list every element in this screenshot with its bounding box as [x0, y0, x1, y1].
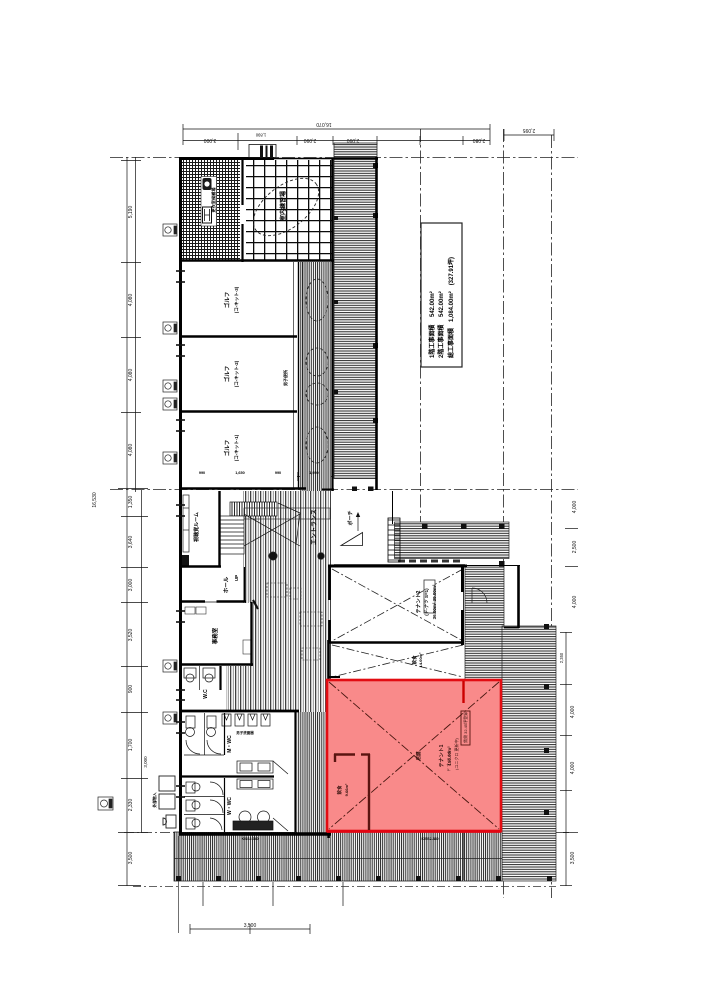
- svg-text:36.00m² 39.00m²: 36.00m² 39.00m²: [432, 584, 437, 619]
- svg-text:5,190: 5,190: [128, 206, 134, 219]
- svg-text:2,080: 2,080: [473, 137, 486, 143]
- svg-text:150.00m²: 150.00m²: [447, 746, 452, 766]
- svg-text:視聴覚ルーム: 視聴覚ルーム: [193, 512, 200, 543]
- svg-text:1,650: 1,650: [235, 471, 245, 475]
- svg-text:男子便所: 男子便所: [282, 370, 288, 386]
- svg-text:2階工事面積 542.00m²: 2階工事面積 542.00m²: [437, 291, 445, 358]
- svg-text:賃貸 32.45坪登録: 賃貸 32.45坪登録: [462, 712, 468, 743]
- svg-text:ゴルフ: ゴルフ: [223, 440, 231, 457]
- svg-text:4,000: 4,000: [570, 762, 576, 775]
- svg-text:990: 990: [199, 471, 205, 475]
- svg-text:3,640: 3,640: [128, 536, 134, 549]
- svg-text:4,000: 4,000: [572, 501, 578, 514]
- svg-text:室内練習場: 室内練習場: [279, 191, 287, 221]
- svg-text:(ユニクロ 更新中): (ユニクロ 更新中): [453, 738, 459, 770]
- svg-text:1,700: 1,700: [128, 739, 134, 752]
- svg-text:更衣室候補場: 更衣室候補場: [210, 187, 217, 213]
- svg-text:M・WC: M・WC: [227, 735, 233, 753]
- svg-text:テナント1: テナント1: [439, 744, 445, 767]
- svg-text:2,500: 2,500: [572, 541, 578, 554]
- svg-text:3,520: 3,520: [128, 629, 134, 642]
- svg-text:ゴルフ: ゴルフ: [223, 366, 231, 383]
- svg-text:W・WC: W・WC: [227, 797, 233, 815]
- svg-text:1階工事面積 542.00m²: 1階工事面積 542.00m²: [428, 291, 436, 358]
- svg-text:1,890: 1,890: [255, 133, 266, 138]
- svg-text:3,000: 3,000: [143, 756, 148, 768]
- svg-text:4,000: 4,000: [570, 706, 576, 719]
- svg-text:外部物入: 外部物入: [152, 792, 157, 808]
- svg-text:2,330: 2,330: [128, 799, 134, 812]
- svg-text:4,080: 4,080: [128, 444, 134, 457]
- svg-text:990: 990: [275, 471, 281, 475]
- svg-text:4,000: 4,000: [572, 596, 578, 609]
- svg-text:飲食: 飲食: [411, 655, 418, 665]
- svg-text:KISS2-340: KISS2-340: [421, 837, 438, 841]
- svg-text:2,350: 2,350: [559, 652, 564, 663]
- svg-text:ホール: ホール: [223, 576, 230, 593]
- svg-text:4,080: 4,080: [128, 294, 134, 307]
- svg-text:1,950: 1,950: [309, 471, 319, 475]
- svg-text:16,530: 16,530: [92, 492, 98, 508]
- svg-text:3,000: 3,000: [204, 137, 217, 143]
- svg-text:3,500: 3,500: [570, 852, 576, 865]
- svg-text:9.66m²: 9.66m²: [344, 783, 349, 796]
- svg-text:16,070: 16,070: [316, 121, 332, 127]
- svg-text:総工事面積 1,084.00m² (327.91坪): 総工事面積 1,084.00m² (327.91坪): [447, 257, 455, 358]
- svg-text:テナント2: テナント2: [416, 590, 422, 613]
- svg-text:2,095: 2,095: [523, 127, 536, 133]
- svg-text:UP: UP: [234, 575, 239, 581]
- svg-text:1,350: 1,350: [128, 496, 134, 509]
- svg-text:飲食: 飲食: [336, 785, 343, 795]
- svg-text:900: 900: [128, 685, 134, 694]
- svg-text:事務室: 事務室: [211, 627, 219, 644]
- svg-text:ポーチ: ポーチ: [347, 510, 354, 525]
- svg-text:3,500: 3,500: [128, 852, 134, 865]
- svg-text:男子洗面器: 男子洗面器: [236, 730, 254, 735]
- svg-text:W.C: W.C: [203, 689, 209, 699]
- svg-text:KISS2-340: KISS2-340: [241, 837, 258, 841]
- svg-text:3,000: 3,000: [128, 579, 134, 592]
- svg-text:3,500: 3,500: [244, 923, 257, 929]
- svg-text:店舗: 店舗: [415, 751, 422, 760]
- svg-text:2,090: 2,090: [304, 137, 317, 143]
- svg-text:エントランス: エントランス: [311, 509, 318, 545]
- svg-text:ゴルフ: ゴルフ: [223, 292, 231, 309]
- svg-text:4,080: 4,080: [128, 369, 134, 382]
- svg-text:14.00m²: 14.00m²: [418, 652, 423, 668]
- svg-text:2,090: 2,090: [347, 137, 360, 143]
